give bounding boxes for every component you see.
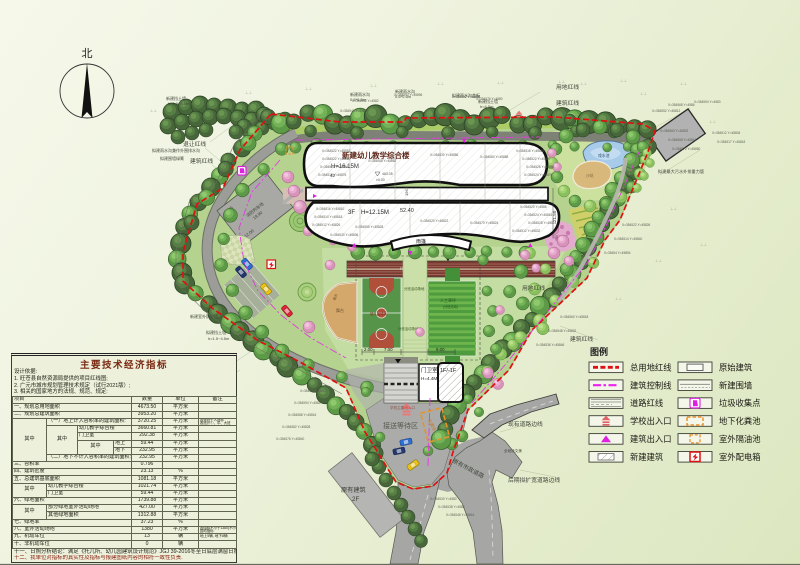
svg-text:X=354526 Y=45868: X=354526 Y=45868 [526, 165, 555, 169]
svg-text:道路红线: 道路红线 [630, 398, 663, 408]
svg-text:X=354572 Y=45850: X=354572 Y=45850 [672, 147, 701, 151]
svg-text:X=354520 Y=45868: X=354520 Y=45868 [320, 165, 349, 169]
svg-text:建筑红线: 建筑红线 [556, 99, 579, 107]
svg-text:建筑红线: 建筑红线 [570, 335, 593, 343]
svg-text:X=354530 Y=4580: X=354530 Y=4580 [430, 497, 457, 501]
svg-text:⊥⊥: ⊥⊥ [370, 83, 377, 88]
svg-text:退让红线: 退让红线 [183, 140, 206, 148]
svg-text:9.00: 9.00 [436, 347, 445, 352]
svg-text:X=35454 Y=45854: X=35454 Y=45854 [604, 251, 631, 255]
svg-text:2.00: 2.00 [364, 347, 373, 352]
svg-text:全段协文美: 全段协文美 [504, 448, 522, 453]
svg-text:⊥⊥: ⊥⊥ [615, 296, 622, 301]
svg-text:学校主要出入口: 学校主要出入口 [390, 405, 416, 410]
svg-text:X=354560 Y=45818: X=354560 Y=45818 [560, 315, 589, 319]
svg-text:分班活动场地: 分班活动场地 [404, 286, 425, 291]
svg-text:北: 北 [82, 47, 93, 60]
svg-text:⊥⊥: ⊥⊥ [700, 242, 707, 247]
svg-text:196.1: 196.1 [404, 185, 409, 196]
svg-text:原始建筑: 原始建筑 [719, 362, 753, 372]
svg-text:⊥⊥: ⊥⊥ [640, 91, 647, 96]
svg-text:⊥⊥: ⊥⊥ [620, 78, 627, 83]
svg-text:新建围墙: 新建围墙 [719, 380, 752, 390]
svg-text:⊥⊥: ⊥⊥ [245, 90, 252, 95]
svg-text:垃圾收集点: 垃圾收集点 [719, 398, 761, 408]
svg-text:⊥⊥: ⊥⊥ [558, 79, 565, 84]
svg-text:X=354555 Y=45828: X=354555 Y=45828 [355, 225, 384, 229]
svg-text:X=354512 Y=45826: X=354512 Y=45826 [312, 223, 341, 227]
svg-text:⊥⊥: ⊥⊥ [580, 81, 587, 86]
svg-text:建筑控制线: 建筑控制线 [630, 380, 672, 390]
svg-text:X=354524 Y=45816: X=354524 Y=45816 [524, 213, 553, 217]
svg-text:0.6*0.6m: 0.6*0.6m [395, 94, 412, 99]
svg-text:X=354548 Y=45832: X=354548 Y=45832 [548, 329, 577, 333]
svg-text:X=354588 Y=45816: X=354588 Y=45816 [288, 413, 317, 417]
svg-text:(分班活动): (分班活动) [443, 304, 458, 309]
svg-text:雨篷: 雨篷 [416, 238, 426, 245]
svg-text:拟建挡土墙: 拟建挡土墙 [206, 329, 226, 335]
svg-text:X=354514 Y=45818: X=354514 Y=45818 [314, 215, 343, 219]
svg-text:X=354552 Y=45812: X=354552 Y=45812 [652, 109, 681, 113]
svg-text:X=354520 Y=4588: X=354520 Y=4588 [520, 205, 547, 209]
svg-text:1F/-1F: 1F/-1F [440, 368, 457, 374]
svg-text:X=354516 Y=45852: X=354516 Y=45852 [516, 149, 545, 153]
svg-text:X=354522 Y=45826: X=354522 Y=45826 [622, 223, 651, 227]
svg-text:X=354518 Y=45876: X=354518 Y=45876 [318, 173, 347, 177]
svg-text:X=354568 Y=45841: X=354568 Y=45841 [668, 138, 697, 142]
svg-text:原有建筑: 原有建筑 [341, 486, 367, 494]
svg-text:52.40: 52.40 [400, 208, 414, 214]
svg-text:X=354524 Y=45876: X=354524 Y=45876 [524, 173, 553, 177]
svg-text:沙坑: 沙坑 [586, 173, 594, 178]
svg-text:X=354514 Y=45840: X=354514 Y=45840 [614, 237, 643, 241]
svg-text:新建建筑: 新建建筑 [630, 452, 664, 462]
svg-text:地下化粪池: 地下化粪池 [719, 416, 761, 426]
svg-text:用地红线: 用地红线 [556, 83, 579, 91]
svg-text:⊥⊥: ⊥⊥ [305, 86, 312, 91]
svg-text:用地红线: 用地红线 [522, 284, 545, 292]
svg-text:⊥⊥: ⊥⊥ [709, 119, 716, 124]
svg-text:⊥⊥: ⊥⊥ [680, 81, 687, 86]
svg-text:X=354536 Y=45846: X=354536 Y=45846 [536, 343, 565, 347]
svg-text:拟建雨水沟盖板: 拟建雨水沟盖板 [452, 92, 480, 98]
svg-text:⊥⊥: ⊥⊥ [497, 80, 504, 85]
svg-text:总用地红线: 总用地红线 [630, 362, 672, 372]
svg-text:X=354522 Y=45860: X=354522 Y=45860 [522, 157, 551, 161]
svg-text:h=1.5~4.5m: h=1.5~4.5m [168, 101, 190, 106]
svg-text:3F H=12.15M: 3F H=12.15M [348, 210, 389, 216]
svg-text:X=354568 Y=45862: X=354568 Y=45862 [368, 159, 397, 163]
svg-text:舞台: 舞台 [336, 307, 344, 313]
svg-text:X=354538 Y=4588: X=354538 Y=4588 [438, 505, 465, 509]
svg-text:X=354522 Y=45860: X=354522 Y=45860 [322, 157, 351, 161]
svg-text:幼儿篮球场: 幼儿篮球场 [370, 311, 388, 316]
svg-text:2F: 2F [352, 496, 359, 503]
svg-text:X=354530 Y=45836: X=354530 Y=45836 [330, 233, 359, 237]
svg-text:X=354530 Y=45856: X=354530 Y=45856 [430, 153, 459, 157]
svg-text:X=354580 Y=45858: X=354580 Y=45858 [480, 155, 509, 159]
svg-text:h=4.5m: h=4.5m [480, 104, 494, 109]
svg-text:室外配电箱: 室外配电箱 [719, 452, 761, 462]
svg-text:建筑红线: 建筑红线 [190, 157, 213, 165]
svg-text:X=354522 Y=45852: X=354522 Y=45852 [322, 149, 351, 153]
svg-text:X=354594 Y=4584: X=354594 Y=4584 [294, 401, 321, 405]
svg-text:拟建最大污水外排重力管: 拟建最大污水外排重力管 [658, 168, 704, 175]
svg-text:X=354576 Y=45840: X=354576 Y=45840 [276, 437, 305, 441]
svg-text:X=354520 Y=45822: X=354520 Y=45822 [420, 219, 449, 223]
svg-text:门卫室: 门卫室 [421, 366, 438, 374]
svg-text:⊥⊥: ⊥⊥ [670, 206, 677, 211]
svg-text:0.5*0.5m: 0.5*0.5m [350, 97, 367, 102]
svg-text:学校出入口: 学校出入口 [630, 416, 672, 426]
svg-text:⊥⊥: ⊥⊥ [437, 81, 444, 86]
svg-text:X=354594 Y=4583: X=354594 Y=4583 [694, 100, 721, 104]
svg-text:X=354512 Y=45832: X=354512 Y=45832 [512, 229, 541, 233]
svg-text:建筑出入口: 建筑出入口 [630, 434, 672, 444]
svg-text:人工草坪: 人工草坪 [440, 297, 456, 303]
svg-text:X=354512 Y=45834: X=354512 Y=45834 [712, 131, 741, 135]
svg-text:接送等待区: 接送等待区 [383, 421, 418, 430]
svg-text:⊥⊥: ⊥⊥ [150, 108, 157, 113]
svg-text:室外隔油池: 室外隔油池 [719, 434, 761, 444]
svg-text:X=354540 Y=45812: X=354540 Y=45812 [340, 109, 369, 113]
svg-text:X=354560 Y=45832: X=354560 Y=45832 [660, 129, 689, 133]
svg-text:H=4.4M: H=4.4M [421, 376, 437, 381]
svg-text:X=354546 Y=45816: X=354546 Y=45816 [446, 513, 475, 517]
svg-text:463.05: 463.05 [382, 172, 393, 176]
svg-text:X=354528 Y=45824: X=354528 Y=45824 [528, 221, 557, 225]
svg-text:拟建雨水沟兼作外围排水沟: 拟建雨水沟兼作外围排水沟 [152, 147, 200, 153]
svg-text:⊥⊥: ⊥⊥ [655, 258, 662, 263]
svg-text:拟建围墙绿篱: 拟建围墙绿篱 [160, 155, 184, 161]
svg-text:后期拟扩宽道路边线: 后期拟扩宽道路边线 [508, 476, 560, 484]
svg-text:戏水池: 戏水池 [598, 153, 610, 158]
svg-text:X=354582 Y=45828: X=354582 Y=45828 [282, 425, 311, 429]
svg-text:7.00: 7.00 [384, 347, 393, 352]
svg-text:图例: 图例 [590, 346, 608, 357]
svg-text:h=1.5~4.5m: h=1.5~4.5m [208, 336, 230, 341]
svg-text:X=354568 Y=4586: X=354568 Y=4586 [668, 103, 695, 107]
svg-text:新建室外防护墙: 新建室外防护墙 [190, 313, 218, 319]
svg-text:X=35450 Y=45892: X=35450 Y=45892 [300, 389, 327, 393]
svg-text:X=354517 Y=45843: X=354517 Y=45843 [717, 140, 746, 144]
svg-text:X=354570 Y=45824: X=354570 Y=45824 [470, 221, 499, 225]
svg-text:现有道路边线: 现有道路边线 [508, 420, 543, 428]
svg-text:X=354516 Y=45810: X=354516 Y=45810 [316, 207, 345, 211]
svg-text:±0.00: ±0.00 [376, 178, 385, 182]
